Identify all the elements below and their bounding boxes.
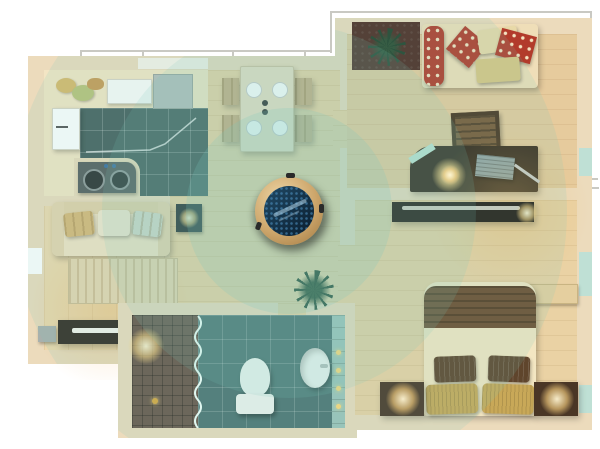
robot-bumper-notch xyxy=(319,204,324,213)
bedside-lamp-glow xyxy=(386,382,420,416)
window-tick xyxy=(80,50,82,57)
floorplan-render xyxy=(0,0,600,449)
window-tick xyxy=(232,50,234,57)
robot-bumper-notch xyxy=(286,173,295,178)
window-tick xyxy=(142,50,144,57)
window-tick xyxy=(304,50,306,57)
desk-lamp-glow-core xyxy=(440,165,460,185)
bedside-lamp-glow xyxy=(540,382,574,416)
robot-vacuum-faceplate xyxy=(264,186,314,236)
window-line xyxy=(80,50,330,52)
window-tick xyxy=(590,11,592,19)
window-line xyxy=(330,11,592,13)
window-tick xyxy=(330,11,332,53)
